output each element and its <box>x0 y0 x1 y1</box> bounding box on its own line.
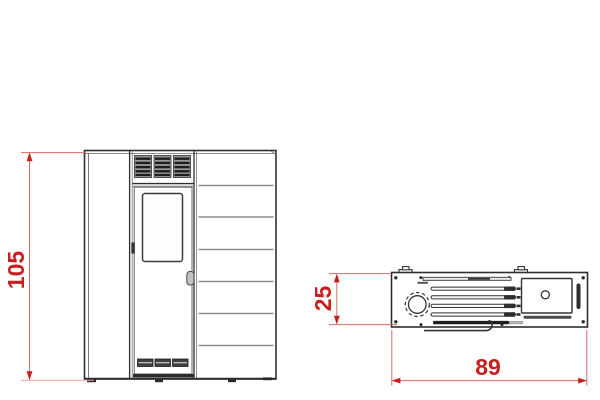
side-slot <box>577 284 581 310</box>
height-dimension-label: 105 <box>3 251 29 290</box>
technical-drawing-page: 105 25 89 <box>0 0 600 400</box>
door-handle <box>187 272 194 286</box>
width-dimension-label: 89 <box>475 354 501 380</box>
door-bottom-vent <box>138 359 189 367</box>
foot <box>228 379 236 382</box>
hopper-lid <box>522 279 573 314</box>
depth-dimension-label: 25 <box>310 286 336 312</box>
top-view <box>392 267 588 331</box>
lid-knob <box>541 291 549 299</box>
arrowhead-left <box>392 378 401 384</box>
front-body-outline <box>85 151 277 380</box>
arrowhead-up <box>334 274 340 283</box>
vent-block <box>154 156 171 178</box>
dimension-height: 105 <box>3 152 94 380</box>
arrowhead-down <box>334 316 340 325</box>
foot <box>263 377 272 380</box>
arrowhead-right <box>578 378 587 384</box>
dimension-width: 89 <box>392 330 587 386</box>
vent-block <box>135 156 152 178</box>
dimension-depth: 25 <box>310 274 397 325</box>
vent-block <box>174 156 191 178</box>
front-view <box>84 151 276 383</box>
arrowhead-down <box>27 371 33 380</box>
door-hinge <box>131 243 135 254</box>
door-window <box>143 194 183 262</box>
door-bottom-bar <box>133 374 195 377</box>
foot <box>155 379 163 382</box>
front-edge-bar <box>524 316 572 319</box>
stove-technical-drawing: 105 25 89 <box>0 0 600 400</box>
arrowhead-up <box>27 152 33 161</box>
